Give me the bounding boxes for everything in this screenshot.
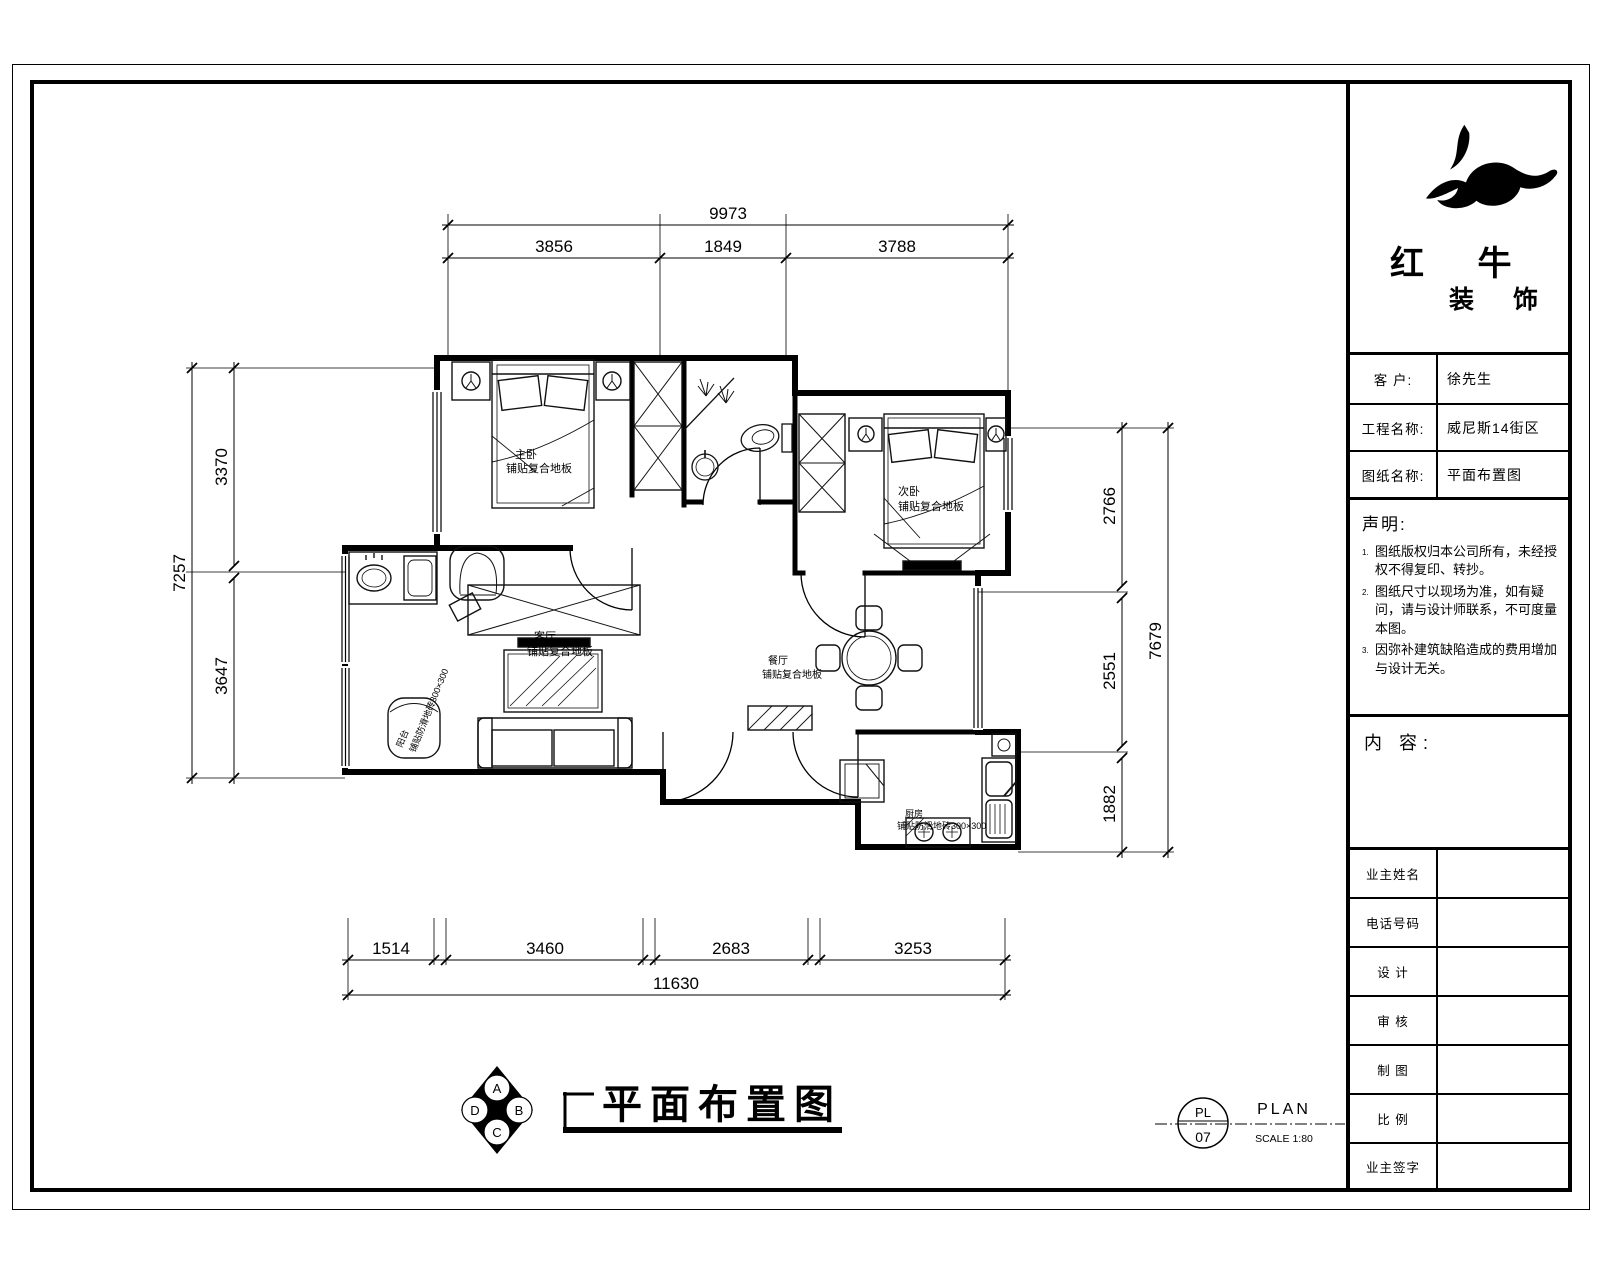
form-label-review: 审 核 — [1350, 997, 1438, 1044]
chair — [816, 645, 840, 671]
sheet-name-row: 图纸名称: 平面布置图 — [1350, 452, 1568, 500]
compass-rose: A B C D — [461, 1066, 533, 1154]
furniture-bedroom1 — [452, 360, 682, 508]
fixtures-bathroom — [684, 378, 792, 480]
statement-section: 声明: 1. 图纸版权归本公司所有，未经授权不得复印、转抄。 2. 图纸尺寸以现… — [1350, 500, 1568, 717]
dim-left: 7257 3370 3647 — [170, 362, 437, 784]
door-kitchen — [793, 732, 858, 797]
room-label-bedroom2: 次卧 — [898, 484, 920, 498]
room-finish-balcony: 铺贴防滑地砖300×300 — [407, 667, 451, 754]
drawing-title-group: 平面布置图 — [563, 1083, 842, 1130]
faucet — [1004, 782, 1016, 796]
dim-right-seg: 2766 — [1100, 487, 1119, 525]
nightstand — [596, 362, 630, 400]
form-label-scale: 比 例 — [1350, 1095, 1438, 1142]
dim-bottom-seg: 1514 — [372, 939, 410, 958]
form-value-scale — [1438, 1095, 1568, 1142]
room-label-bedroom1: 主卧 — [515, 448, 537, 461]
dim-bottom-seg: 2683 — [712, 939, 750, 958]
dim-top-seg: 1849 — [704, 237, 742, 256]
form-row: 业主签字 — [1350, 1144, 1568, 1188]
dim-left-total: 7257 — [170, 554, 189, 592]
stamp-label: PLAN — [1257, 1101, 1311, 1118]
room-label-balcony: 阳台 — [394, 728, 411, 749]
form-row: 制 图 — [1350, 1046, 1568, 1095]
pillow — [544, 376, 587, 411]
sofa-armrest — [618, 718, 632, 768]
company-logo-cell: 红 牛 装 饰 — [1350, 84, 1568, 355]
door-bedroom1 — [570, 548, 632, 610]
statement-item-no: 3. — [1362, 641, 1375, 678]
form-value-owner-name — [1438, 850, 1568, 897]
compass-letter-w: D — [470, 1103, 479, 1118]
dim-top-seg: 3856 — [535, 237, 573, 256]
form-row: 电话号码 — [1350, 899, 1568, 948]
dim-bottom-seg: 3253 — [894, 939, 932, 958]
stool — [449, 593, 480, 621]
room-label-living: 客厅 — [534, 629, 556, 643]
door-bedroom2 — [801, 573, 865, 637]
corner-unit — [992, 734, 1016, 756]
statement-item-text: 因弥补建筑缺陷造成的费用增加与设计无关。 — [1375, 641, 1560, 678]
statement-item: 3. 因弥补建筑缺陷造成的费用增加与设计无关。 — [1362, 641, 1560, 678]
client-label: 客 户: — [1350, 355, 1438, 403]
door-entry — [663, 732, 733, 802]
shoe-cabinet — [748, 706, 812, 730]
chair — [898, 645, 922, 671]
room-finish-living: 铺贴复合地板 — [527, 644, 593, 658]
rug — [504, 650, 602, 712]
compass-letter-e: B — [515, 1103, 524, 1118]
pillow — [934, 430, 977, 463]
statement-item-no: 2. — [1362, 583, 1375, 638]
dim-left-seg: 3647 — [212, 657, 231, 695]
statement-item-text: 图纸尺寸以现场为准，如有疑问，请与设计师联系，不可度量本图。 — [1375, 583, 1560, 638]
title-block: 红 牛 装 饰 客 户: 徐先生 工程名称: 威尼斯14街区 图纸名称: 平面布… — [1346, 84, 1568, 1188]
signature-form: 业主姓名 电话号码 设 计 审 核 制 图 比 例 业主签字 — [1350, 850, 1568, 1188]
form-label-design: 设 计 — [1350, 948, 1438, 995]
form-label-draft: 制 图 — [1350, 1046, 1438, 1093]
pillow — [498, 376, 541, 411]
form-row: 审 核 — [1350, 997, 1568, 1046]
compass-letter-n: A — [493, 1081, 502, 1096]
dim-bottom: 1514 3460 2683 3253 11630 — [342, 918, 1011, 1000]
form-label-owner-name: 业主姓名 — [1350, 850, 1438, 897]
chair — [856, 606, 882, 630]
room-finish-dining: 铺贴复合地板 — [762, 668, 822, 681]
room-label-kitchen: 厨房 — [905, 808, 923, 819]
compass-letter-s: C — [492, 1125, 501, 1140]
form-label-owner-sign: 业主签字 — [1350, 1144, 1438, 1188]
chair — [856, 686, 882, 710]
form-value-review — [1438, 997, 1568, 1044]
sheet-name-label: 图纸名称: — [1350, 452, 1438, 497]
dim-bottom-total: 11630 — [653, 974, 699, 993]
client-value: 徐先生 — [1438, 355, 1568, 403]
bed — [492, 360, 594, 508]
dim-top-seg: 3788 — [878, 237, 916, 256]
company-name: 红 牛 — [1390, 236, 1533, 285]
stamp-code-top: PL — [1195, 1105, 1211, 1120]
company-logo-icon — [1402, 116, 1562, 236]
form-value-design — [1438, 948, 1568, 995]
dim-right-seg: 2551 — [1100, 652, 1119, 690]
drawing-title: 平面布置图 — [602, 1083, 842, 1127]
dim-left-seg: 3370 — [212, 448, 231, 486]
room-finish-bedroom1: 铺贴复合地板 — [506, 461, 572, 475]
project-row: 工程名称: 威尼斯14街区 — [1350, 405, 1568, 452]
form-value-phone — [1438, 899, 1568, 946]
dining-table — [842, 631, 896, 685]
statement-item: 1. 图纸版权归本公司所有，未经授权不得复印、转抄。 — [1362, 543, 1560, 580]
shower-spray-icon — [698, 379, 714, 396]
stamp-scale: SCALE 1:80 — [1255, 1133, 1313, 1145]
form-row: 设 计 — [1350, 948, 1568, 997]
sofa-armrest — [478, 718, 492, 768]
client-row: 客 户: 徐先生 — [1350, 355, 1568, 405]
project-label: 工程名称: — [1350, 405, 1438, 450]
room-finish-kitchen: 铺贴防滑地砖300×300 — [897, 820, 986, 831]
form-row: 比 例 — [1350, 1095, 1568, 1144]
dim-bottom-seg: 3460 — [526, 939, 564, 958]
room-finish-bedroom2: 铺贴复合地板 — [898, 499, 964, 513]
dim-right-seg: 1882 — [1100, 785, 1119, 823]
door-bathroom — [703, 448, 760, 505]
form-value-owner-sign — [1438, 1144, 1568, 1188]
statement-item-no: 1. — [1362, 543, 1375, 580]
plan-stamp: PL 07 PLAN SCALE 1:80 — [1155, 1098, 1345, 1148]
form-row: 业主姓名 — [1350, 850, 1568, 899]
tv — [903, 561, 961, 570]
dim-right-total: 7679 — [1146, 622, 1165, 660]
stamp-code-bottom: 07 — [1195, 1129, 1211, 1145]
dim-top-total: 9973 — [709, 204, 747, 223]
statement-item-text: 图纸版权归本公司所有，未经授权不得复印、转抄。 — [1375, 543, 1560, 580]
form-value-draft — [1438, 1046, 1568, 1093]
content-section: 内 容: — [1350, 717, 1568, 850]
sofa-seat — [554, 730, 614, 766]
room-label-dining: 餐厅 — [768, 654, 788, 667]
statement-item: 2. 图纸尺寸以现场为准，如有疑问，请与设计师联系，不可度量本图。 — [1362, 583, 1560, 638]
toilet-tank — [782, 424, 792, 452]
drawing-sheet: { "company": { "name": "红 牛", "sub": "装 … — [0, 0, 1600, 1280]
floor-plan-svg: 主卧 铺贴复合地板 次卧 铺贴复合地板 客厅 铺贴复合地板 餐厅 铺贴复合地板 … — [30, 80, 1346, 1188]
statement-title: 声明: — [1362, 510, 1560, 535]
company-sub-name: 装 饰 — [1449, 280, 1554, 316]
sofa — [478, 718, 632, 768]
shower-spray-icon — [718, 386, 734, 403]
furniture-dining — [748, 606, 922, 730]
form-label-phone: 电话号码 — [1350, 899, 1438, 946]
windows — [340, 390, 1013, 768]
shower-screen — [684, 378, 734, 430]
project-value: 威尼斯14街区 — [1438, 405, 1568, 450]
pillow — [888, 430, 931, 463]
sofa-seat — [492, 730, 552, 766]
sheet-name-value: 平面布置图 — [1438, 452, 1568, 497]
